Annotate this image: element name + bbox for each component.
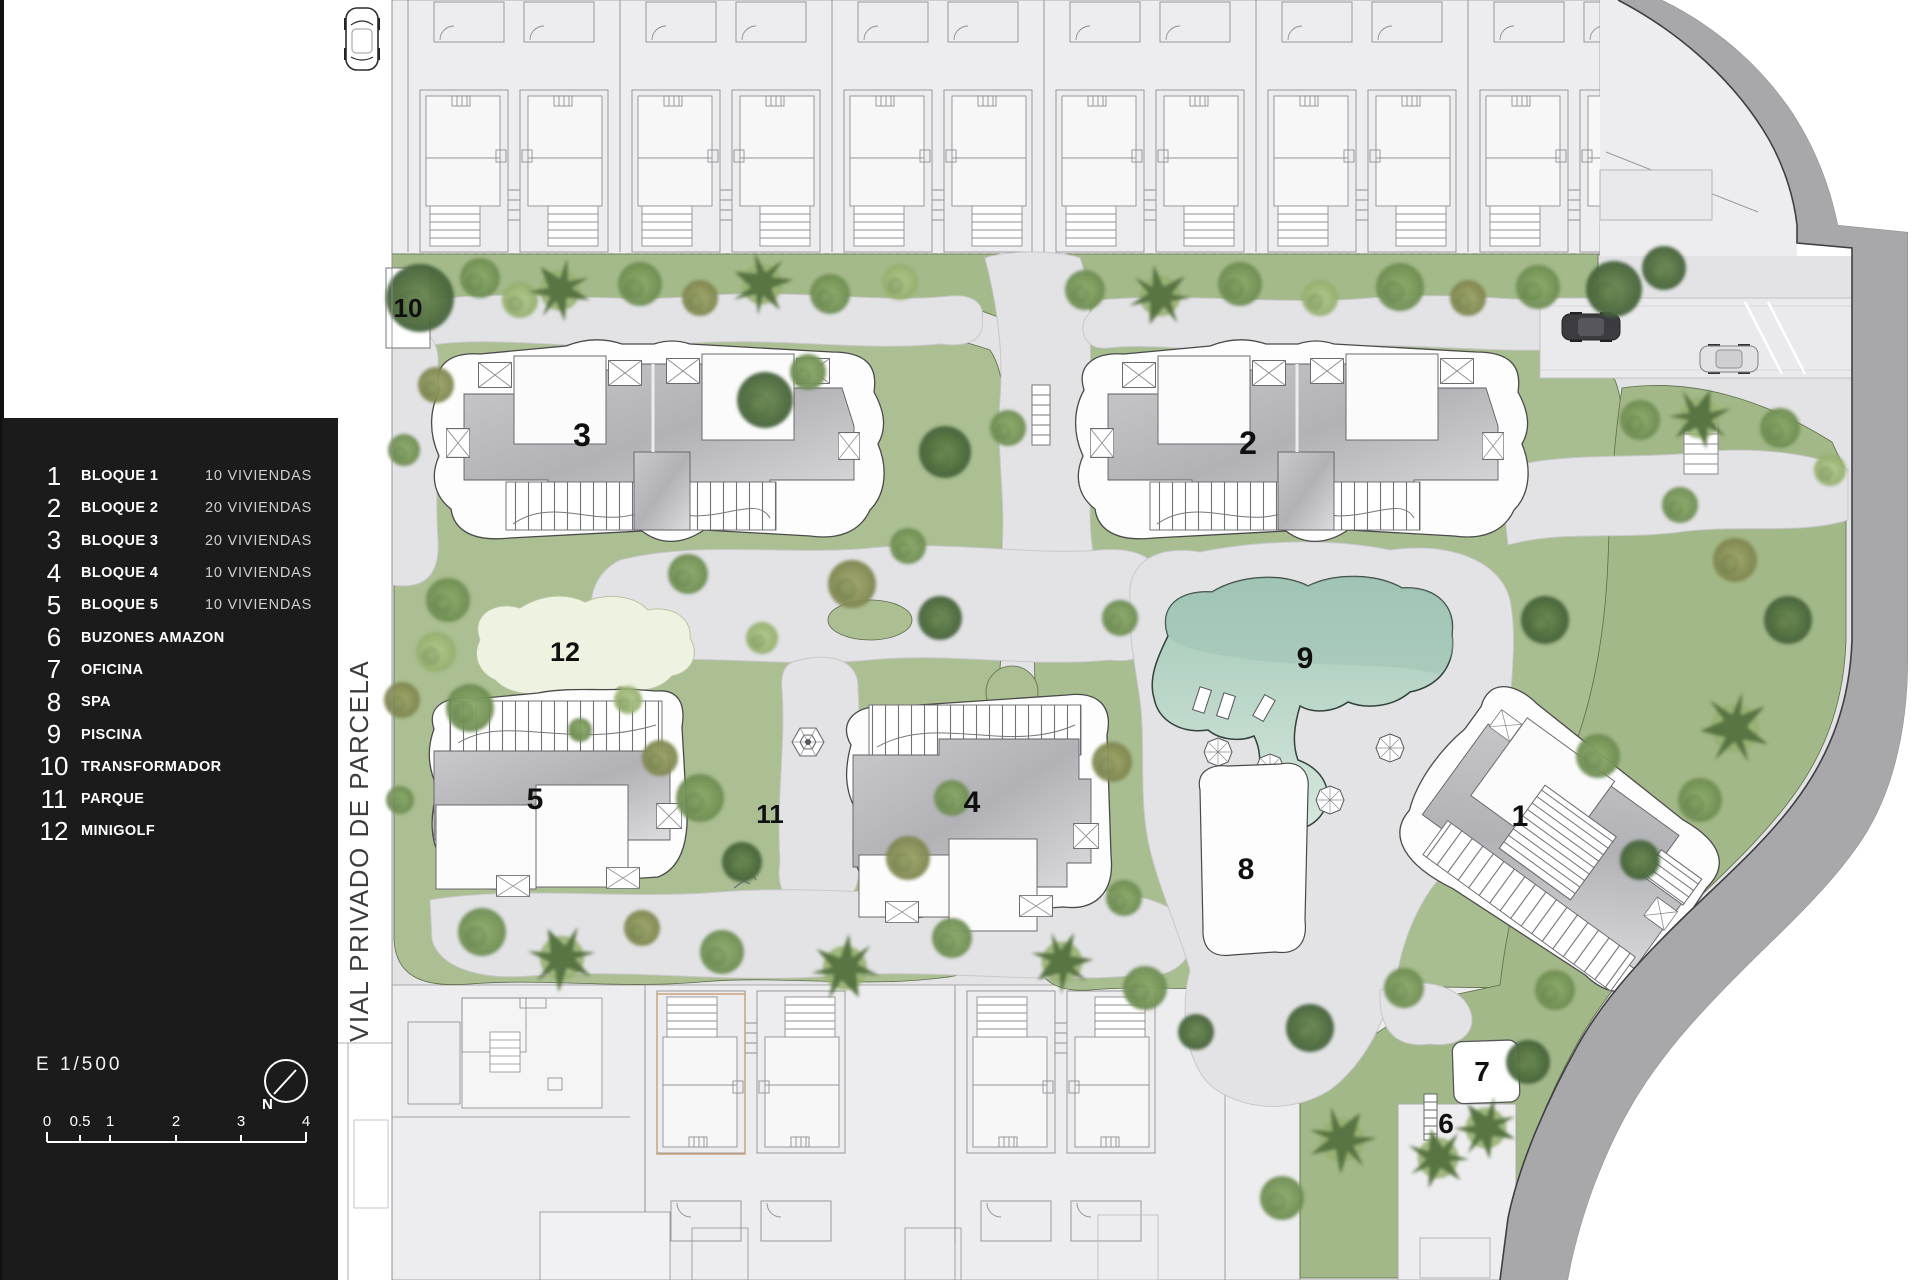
legend-item-number: 1 — [32, 461, 76, 492]
plan-marker: 2 — [1239, 425, 1257, 461]
legend-item-number: 12 — [32, 816, 76, 847]
north-compass: N — [252, 1056, 322, 1118]
legend-item-number: 7 — [32, 654, 76, 685]
legend-item-sub: 20 VIVIENDAS — [205, 533, 312, 549]
legend-item-number: 10 — [32, 751, 76, 782]
legend-item-number: 8 — [32, 687, 76, 718]
plan-marker: 12 — [550, 637, 580, 667]
plan-marker: 11 — [756, 799, 784, 829]
legend-item-number: 9 — [32, 719, 76, 750]
legend-item-label: MINIGOLF — [81, 823, 155, 839]
legend-item-label: BUZONES AMAZON — [81, 630, 225, 646]
scale-tick-label: 1 — [106, 1113, 114, 1130]
left-bottom-plot — [338, 1043, 392, 1280]
legend-item-number: 6 — [32, 622, 76, 653]
legend-item-label: PISCINA — [81, 727, 143, 743]
plan-marker: 3 — [573, 417, 591, 453]
legend-item: 6BUZONES AMAZON — [2, 621, 338, 653]
scale-label: E 1/500 — [36, 1054, 123, 1076]
car-icon — [344, 8, 380, 70]
legend-item-label: BLOQUE 4 — [81, 565, 179, 581]
legend-item: 4BLOQUE 410 VIVIENDAS — [2, 557, 338, 589]
legend-item-number: 2 — [32, 493, 76, 524]
legend-item-label: BLOQUE 3 — [81, 533, 179, 549]
plan-marker: 8 — [1238, 853, 1255, 886]
top-townhouses — [392, 0, 1668, 256]
plan-marker: 9 — [1297, 642, 1314, 675]
legend-item-label: OFICINA — [81, 662, 143, 678]
plan-marker: 6 — [1438, 1108, 1454, 1139]
north-label: N — [262, 1096, 273, 1113]
north-needle — [274, 1070, 296, 1094]
legend-item: 8SPA — [2, 686, 338, 718]
scale-tick-label: 2 — [172, 1113, 180, 1130]
legend-item-label: PARQUE — [81, 791, 144, 807]
legend-item: 11PARQUE — [2, 783, 338, 815]
minigolf-green — [476, 596, 694, 697]
legend-item-sub: 20 VIVIENDAS — [205, 500, 312, 516]
plan-marker: 5 — [527, 783, 544, 816]
plan-marker: 1 — [1512, 800, 1529, 833]
legend-item: 12MINIGOLF — [2, 815, 338, 847]
legend-item: 5BLOQUE 510 VIVIENDAS — [2, 589, 338, 621]
legend-item-label: SPA — [81, 694, 111, 710]
car-icon — [1700, 344, 1758, 374]
plan-marker: 4 — [964, 786, 981, 819]
legend-item-label: TRANSFORMADOR — [81, 759, 222, 775]
legend-item-label: BLOQUE 2 — [81, 500, 179, 516]
legend-item-number: 3 — [32, 525, 76, 556]
legend-item: 9PISCINA — [2, 718, 338, 750]
building-2 — [1076, 340, 1529, 542]
legend-item-sub: 10 VIVIENDAS — [205, 468, 312, 484]
legend-item-number: 5 — [32, 590, 76, 621]
scale-tick-label: 3 — [237, 1113, 245, 1130]
legend-item-sub: 10 VIVIENDAS — [205, 565, 312, 581]
plan-marker: 7 — [1474, 1056, 1490, 1087]
legend-item-label: BLOQUE 5 — [81, 597, 179, 613]
legend-item: 1BLOQUE 110 VIVIENDAS — [2, 460, 338, 492]
legend-item: 10TRANSFORMADOR — [2, 751, 338, 783]
legend-panel: 1BLOQUE 110 VIVIENDAS2BLOQUE 220 VIVIEND… — [2, 418, 338, 1280]
legend-item: 3BLOQUE 320 VIVIENDAS — [2, 525, 338, 557]
legend-item: 2BLOQUE 220 VIVIENDAS — [2, 492, 338, 524]
scale-tick-label: 0 — [43, 1113, 51, 1130]
site-plan-page: 123456789101112 1BLOQUE 110 VIVIENDAS2BL… — [0, 0, 1920, 1280]
legend-item-label: BLOQUE 1 — [81, 468, 179, 484]
scale-tick-label: 0.5 — [70, 1113, 91, 1130]
legend-item-number: 11 — [32, 784, 76, 815]
legend-list: 1BLOQUE 110 VIVIENDAS2BLOQUE 220 VIVIEND… — [2, 460, 338, 848]
legend-item-sub: 10 VIVIENDAS — [205, 597, 312, 613]
legend-item-number: 4 — [32, 558, 76, 589]
legend-item: 7OFICINA — [2, 654, 338, 686]
plan-marker: 10 — [394, 293, 423, 323]
road-name-label: VIAL PRIVADO DE PARCELA — [344, 730, 375, 1042]
stair-link — [1032, 385, 1050, 445]
